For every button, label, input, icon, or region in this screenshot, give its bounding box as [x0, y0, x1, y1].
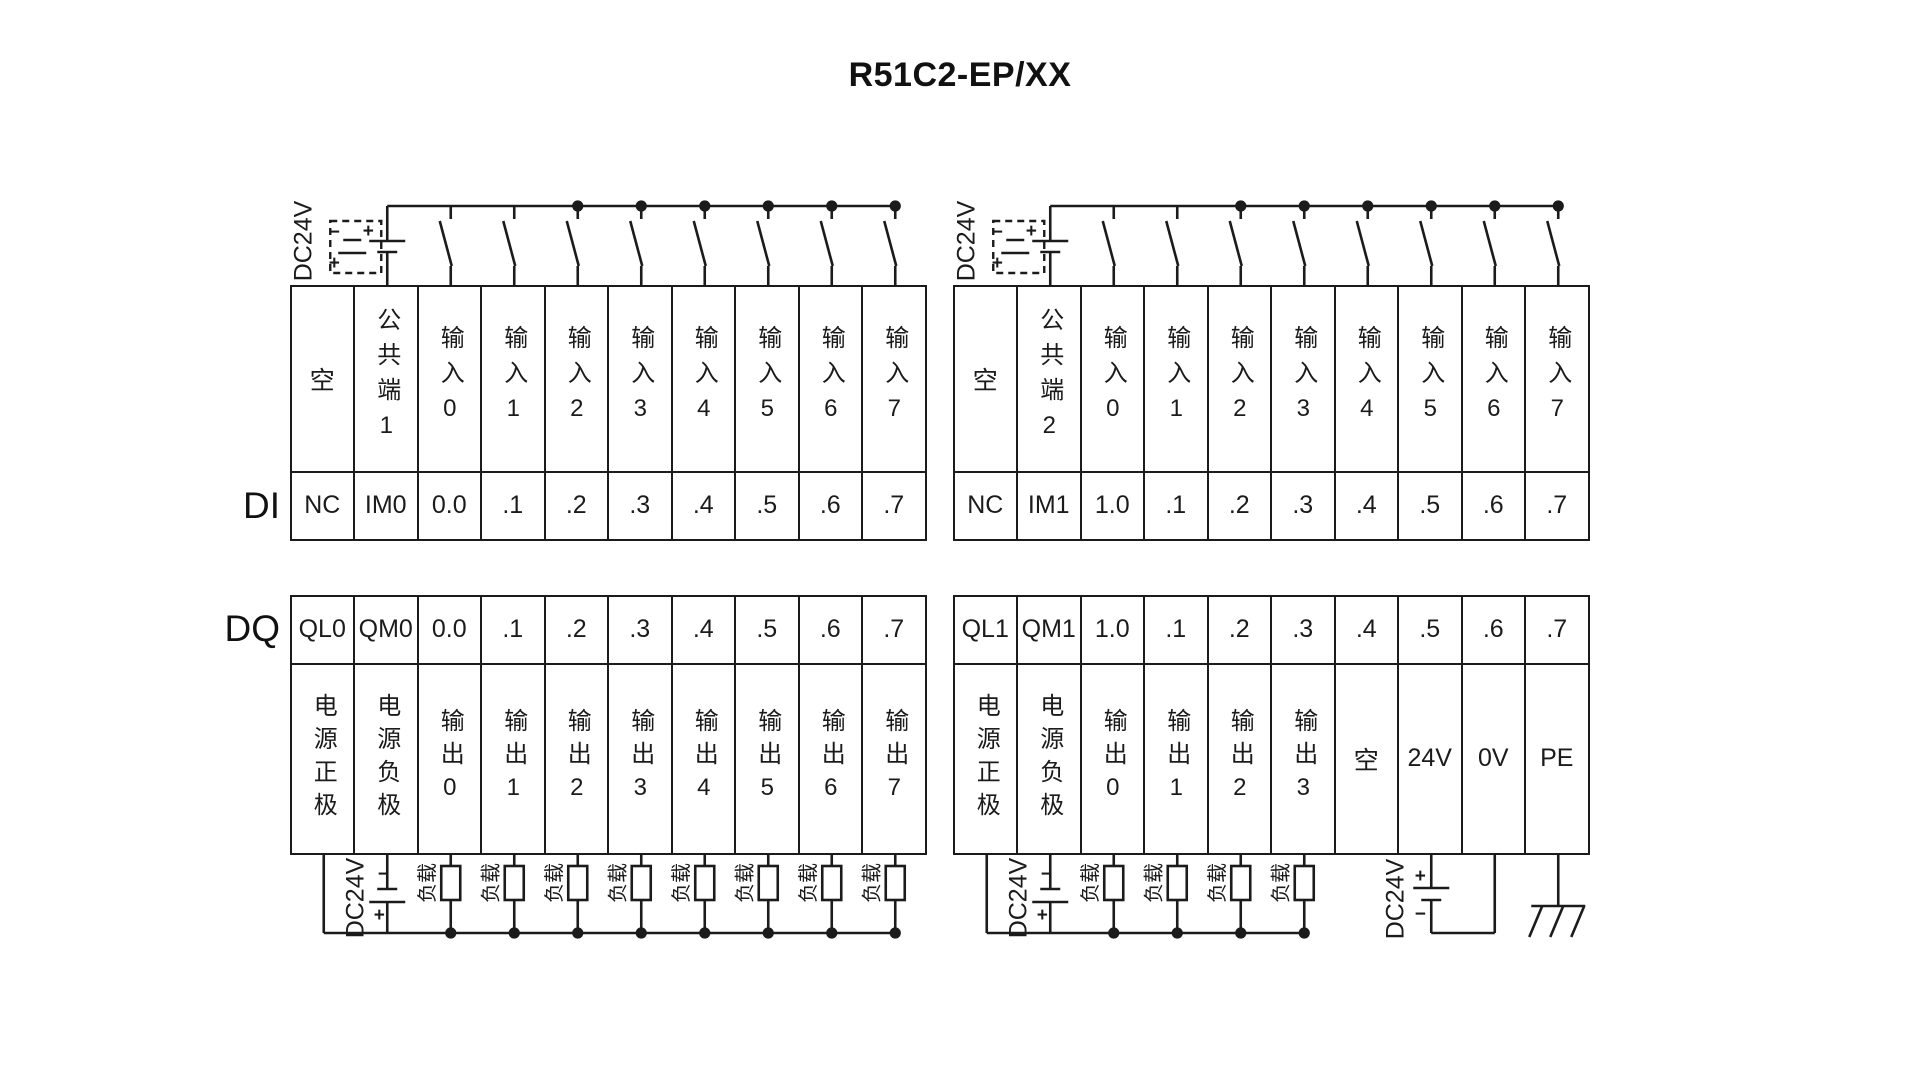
dq-header-row: 电源正极电源负极输出0输出1输出2输出3空24V0VPE: [955, 665, 1590, 855]
di-header-cell: 输入6: [800, 287, 864, 473]
di-right-table: 空公共端2输入0输入1输入2输入3输入4输入5输入6输入7NCIM11.0.1.…: [953, 285, 1590, 541]
junction-dot: [636, 927, 647, 938]
di-header-text: 输入5: [1418, 325, 1442, 433]
junction-dot: [1299, 927, 1310, 938]
load-resistor: 负载: [1206, 855, 1251, 933]
switch-blade: [884, 221, 896, 266]
dq-header-text: 输出7: [882, 708, 906, 810]
di-header-text: 输入6: [1481, 325, 1505, 433]
junction-dot: [763, 200, 774, 211]
switch-blade: [567, 221, 579, 266]
di-header-cell: 公共端2: [1018, 287, 1082, 473]
load-resistor: 负载: [479, 855, 524, 933]
load-label: 负载: [543, 863, 566, 903]
dq-terminal-cell: .1: [482, 597, 546, 665]
di-right-wiring: +−+DC24V: [952, 200, 1564, 287]
dq-terminal-text: .6: [1483, 615, 1504, 644]
switch-blade: [630, 221, 642, 266]
di-header-cell: 输入2: [546, 287, 610, 473]
switch-blade: [1420, 221, 1432, 266]
dq-header-text: 电源负极: [374, 693, 398, 825]
switch-blade: [821, 221, 833, 266]
dq-header-cell: 输出5: [736, 665, 800, 855]
dq-left-wiring: −+DC24V负载负载负载负载负载负载负载负载: [324, 855, 905, 939]
load-resistor-body: [1231, 866, 1250, 900]
dq-header-cell: 输出1: [482, 665, 546, 855]
dq-header-cell: 输出2: [546, 665, 610, 855]
plus-sign: +: [1026, 221, 1037, 242]
switch-blade: [440, 221, 452, 266]
minus-sign: −: [329, 222, 340, 243]
di-terminal-text: .3: [629, 491, 650, 520]
dq-header-text: 24V: [1408, 744, 1452, 773]
dq-header-cell: 0V: [1463, 665, 1527, 855]
di-header-text: 输入4: [691, 325, 715, 433]
switch-contact-icon: [503, 206, 515, 287]
switch-blade: [1166, 221, 1178, 266]
switch-blade: [503, 221, 515, 266]
dq-terminal-text: QL1: [962, 615, 1009, 644]
load-resistor-body: [632, 866, 651, 900]
di-header-cell: 输入4: [673, 287, 737, 473]
switch-contact-icon: [1547, 206, 1559, 287]
di-header-text: 输入4: [1354, 325, 1378, 433]
di-header-cell: 输入1: [1145, 287, 1209, 473]
dq-header-text: 输出5: [755, 708, 779, 810]
di-header-cell: 输入7: [1526, 287, 1590, 473]
dq-terminal-cell: .3: [1272, 597, 1336, 665]
di-header-text: 公共端1: [374, 307, 398, 450]
dq-right-wiring: −+DC24V负载负载负载负载+−DC24V: [987, 855, 1586, 939]
dq-header-cell: 输出2: [1209, 665, 1273, 855]
dq-terminal-cell: .1: [1145, 597, 1209, 665]
dq-terminal-cell: QL1: [955, 597, 1019, 665]
di-header-cell: 输入4: [1336, 287, 1400, 473]
switch-contact-icon: [1293, 206, 1305, 287]
load-resistor-body: [1104, 866, 1123, 900]
dq-terminal-cell: .5: [736, 597, 800, 665]
dc24v-label: DC24V: [1004, 857, 1032, 938]
di-header-text: 输入0: [437, 325, 461, 433]
di-terminal-text: .6: [820, 491, 841, 520]
di-header-cell: 输入3: [1272, 287, 1336, 473]
dq-terminal-text: .1: [502, 615, 523, 644]
dq-terminal-cell: QM1: [1018, 597, 1082, 665]
di-header-text: 输入5: [755, 325, 779, 433]
di-terminal-cell: .3: [609, 473, 673, 541]
plus-sign: +: [992, 253, 1003, 274]
switch-contact-icon: [1166, 206, 1178, 287]
dq-terminal-cell: .7: [863, 597, 927, 665]
dq-terminal-text: .1: [1165, 615, 1186, 644]
di-header-text: 输入7: [1545, 325, 1569, 433]
dq-header-text: 电源负极: [1037, 693, 1061, 825]
dq-terminal-text: .3: [629, 615, 650, 644]
plus-sign: +: [1037, 905, 1048, 926]
di-terminal-text: 1.0: [1095, 491, 1130, 520]
dq-terminal-text: .6: [820, 615, 841, 644]
ground-hatch: [1571, 906, 1584, 937]
dq-terminal-cell: .4: [1336, 597, 1400, 665]
load-resistor: 负载: [416, 855, 461, 933]
dq-terminal-cell: 0.0: [419, 597, 483, 665]
switch-blade: [1484, 221, 1496, 266]
plus-sign: +: [329, 253, 340, 274]
junction-dot: [699, 927, 710, 938]
di-terminal-cell: .4: [673, 473, 737, 541]
dq-header-cell: 输出6: [800, 665, 864, 855]
di-terminal-cell: 0.0: [419, 473, 483, 541]
di-header-text: 空: [310, 361, 335, 397]
load-resistor: 负载: [670, 855, 715, 933]
dq-terminal-text: .5: [1419, 615, 1440, 644]
junction-dot: [763, 927, 774, 938]
dq-header-cell: 输出3: [1272, 665, 1336, 855]
di-terminal-cell: .7: [1526, 473, 1590, 541]
junction-dot: [1362, 200, 1373, 211]
junction-dot: [1553, 200, 1564, 211]
dq-terminal-cell: .2: [1209, 597, 1273, 665]
load-resistor: 负载: [1142, 855, 1187, 933]
di-header-text: 输入3: [628, 325, 652, 433]
di-terminal-text: .4: [1356, 491, 1377, 520]
load-label: 负载: [416, 863, 439, 903]
ground-hatch: [1550, 906, 1563, 937]
load-resistor-body: [1295, 866, 1314, 900]
di-terminal-text: IM0: [365, 491, 407, 520]
junction-dot: [509, 927, 520, 938]
switch-contact-icon: [884, 206, 896, 287]
dq-right-table: QL1QM11.0.1.2.3.4.5.6.7电源正极电源负极输出0输出1输出2…: [953, 595, 1590, 855]
di-terminal-text: .3: [1292, 491, 1313, 520]
load-label: 负载: [670, 863, 693, 903]
dq-header-text: 输出6: [818, 708, 842, 810]
switch-blade: [694, 221, 706, 266]
di-header-text: 输入2: [564, 325, 588, 433]
di-header-cell: 输入2: [1209, 287, 1273, 473]
junction-dot: [890, 927, 901, 938]
di-left-wiring: +−+DC24V: [289, 200, 901, 287]
dc24v-label: DC24V: [1381, 858, 1409, 939]
dq-header-cell: 电源负极: [1018, 665, 1082, 855]
minus-sign: −: [1415, 904, 1426, 925]
junction-dot: [445, 927, 456, 938]
load-resistor: 负载: [860, 855, 905, 933]
load-label: 负载: [1142, 863, 1165, 903]
wiring-diagram-page: R51C2-EP/XX DI DQ +−+DC24V+−+DC24V−+DC24…: [0, 0, 1920, 1080]
junction-dot: [1108, 927, 1119, 938]
di-terminal-cell: NC: [955, 473, 1019, 541]
dq-terminal-cell: .3: [609, 597, 673, 665]
di-terminal-text: .5: [756, 491, 777, 520]
switch-blade: [1230, 221, 1242, 266]
dc24v-label: DC24V: [289, 200, 317, 281]
load-label: 负载: [733, 863, 756, 903]
dq-header-cell: 空: [1336, 665, 1400, 855]
dq-left-table: QL0QM00.0.1.2.3.4.5.6.7电源正极电源负极输出0输出1输出2…: [290, 595, 927, 855]
junction-dot: [890, 200, 901, 211]
switch-contact-icon: [757, 206, 769, 287]
junction-dot: [1235, 200, 1246, 211]
dq-terminal-text: .7: [1546, 615, 1567, 644]
di-header-text: 输入3: [1291, 325, 1315, 433]
dq-header-text: PE: [1540, 744, 1573, 773]
di-terminal-cell: .4: [1336, 473, 1400, 541]
load-resistor: 负载: [797, 855, 842, 933]
di-terminal-text: IM1: [1028, 491, 1070, 520]
di-terminal-text: .5: [1419, 491, 1440, 520]
di-terminal-cell: IM1: [1018, 473, 1082, 541]
dq-header-text: 输出1: [501, 708, 525, 810]
switch-blade: [1547, 221, 1559, 266]
dq-header-text: 输出0: [437, 708, 461, 810]
switch-contact-icon: [1230, 206, 1242, 287]
junction-dot: [1235, 927, 1246, 938]
dq-header-cell: 输出0: [419, 665, 483, 855]
di-terminal-cell: .2: [546, 473, 610, 541]
junction-dot: [826, 927, 837, 938]
di-header-cell: 空: [955, 287, 1019, 473]
dq-header-cell: 输出0: [1082, 665, 1146, 855]
dq-terminal-text: QL0: [299, 615, 346, 644]
di-header-row: 空公共端1输入0输入1输入2输入3输入4输入5输入6输入7: [292, 287, 927, 473]
load-resistor-body: [695, 866, 714, 900]
load-label: 负载: [797, 863, 820, 903]
di-terminal-text: 0.0: [432, 491, 467, 520]
di-terminal-cell: .1: [1145, 473, 1209, 541]
dq-terminal-text: .5: [756, 615, 777, 644]
dq-header-text: 0V: [1478, 744, 1509, 773]
dq-terminal-cell: .4: [673, 597, 737, 665]
load-label: 负载: [860, 863, 883, 903]
load-label: 负载: [1206, 863, 1229, 903]
dq-terminal-text: .4: [1356, 615, 1377, 644]
di-terminal-row: NCIM11.0.1.2.3.4.5.6.7: [955, 473, 1590, 541]
di-terminal-cell: .2: [1209, 473, 1273, 541]
dq-header-text: 输出3: [628, 708, 652, 810]
di-left-table: 空公共端1输入0输入1输入2输入3输入4输入5输入6输入7NCIM00.0.1.…: [290, 285, 927, 541]
dq-header-text: 空: [1354, 741, 1379, 777]
dq-header-cell: 输出7: [863, 665, 927, 855]
di-header-cell: 输入0: [419, 287, 483, 473]
di-terminal-cell: .5: [736, 473, 800, 541]
switch-contact-icon: [567, 206, 579, 287]
di-header-row: 空公共端2输入0输入1输入2输入3输入4输入5输入6输入7: [955, 287, 1590, 473]
plus-sign: +: [1415, 866, 1426, 887]
load-resistor-body: [822, 866, 841, 900]
dq-terminal-text: QM1: [1022, 615, 1076, 644]
di-terminal-text: .2: [1229, 491, 1250, 520]
dq-terminal-text: .2: [1229, 615, 1250, 644]
di-terminal-cell: .1: [482, 473, 546, 541]
junction-dot: [826, 200, 837, 211]
di-header-cell: 输入0: [1082, 287, 1146, 473]
dq-header-text: 输出1: [1164, 708, 1188, 810]
switch-contact-icon: [694, 206, 706, 287]
junction-dot: [699, 200, 710, 211]
dq-header-text: 输出2: [564, 708, 588, 810]
switch-blade: [757, 221, 769, 266]
junction-dot: [636, 200, 647, 211]
switch-blade: [1357, 221, 1369, 266]
dq-terminal-cell: .5: [1399, 597, 1463, 665]
ground-hatch: [1529, 906, 1542, 937]
di-header-cell: 输入7: [863, 287, 927, 473]
di-terminal-text: .2: [566, 491, 587, 520]
di-terminal-cell: .3: [1272, 473, 1336, 541]
plus-sign: +: [363, 221, 374, 242]
dq-header-cell: 输出4: [673, 665, 737, 855]
dq-terminal-cell: .7: [1526, 597, 1590, 665]
load-resistor-body: [759, 866, 778, 900]
minus-sign: −: [992, 222, 1003, 243]
dq-header-cell: 电源正极: [292, 665, 356, 855]
di-header-cell: 公共端1: [355, 287, 419, 473]
load-resistor: 负载: [543, 855, 588, 933]
switch-blade: [1103, 221, 1115, 266]
di-terminal-text: .4: [693, 491, 714, 520]
junction-dot: [1426, 200, 1437, 211]
dq-header-row: 电源正极电源负极输出0输出1输出2输出3输出4输出5输出6输出7: [292, 665, 927, 855]
di-terminal-text: .1: [502, 491, 523, 520]
load-resistor: 负载: [733, 855, 778, 933]
dq-header-text: 电源正极: [310, 693, 334, 825]
dq-header-cell: PE: [1526, 665, 1590, 855]
di-terminal-cell: 1.0: [1082, 473, 1146, 541]
dq-terminal-cell: 1.0: [1082, 597, 1146, 665]
dq-header-text: 输出0: [1100, 708, 1124, 810]
dq-terminal-text: .2: [566, 615, 587, 644]
di-header-text: 输入2: [1227, 325, 1251, 433]
di-terminal-cell: .6: [1463, 473, 1527, 541]
load-resistor-body: [441, 866, 460, 900]
di-header-text: 输入1: [1164, 325, 1188, 433]
load-resistor-body: [568, 866, 587, 900]
di-header-cell: 输入3: [609, 287, 673, 473]
switch-contact-icon: [1103, 206, 1115, 287]
load-label: 负载: [1269, 863, 1292, 903]
load-label: 负载: [1079, 863, 1102, 903]
di-header-text: 输入7: [882, 325, 906, 433]
dq-header-cell: 输出3: [609, 665, 673, 855]
di-terminal-cell: .5: [1399, 473, 1463, 541]
dq-terminal-cell: .6: [1463, 597, 1527, 665]
load-resistor-body: [886, 866, 905, 900]
load-resistor: 负载: [1079, 855, 1124, 933]
di-header-text: 输入6: [818, 325, 842, 433]
di-header-text: 输入1: [501, 325, 525, 433]
junction-dot: [1172, 927, 1183, 938]
dq-terminal-cell: QL0: [292, 597, 356, 665]
dq-terminal-text: 1.0: [1095, 615, 1130, 644]
junction-dot: [572, 200, 583, 211]
dq-header-text: 电源正极: [973, 693, 997, 825]
di-header-cell: 输入5: [1399, 287, 1463, 473]
load-resistor-body: [505, 866, 524, 900]
di-terminal-text: NC: [304, 491, 340, 520]
dq-header-cell: 24V: [1399, 665, 1463, 855]
di-terminal-text: .7: [883, 491, 904, 520]
switch-contact-icon: [821, 206, 833, 287]
dq-terminal-row: QL1QM11.0.1.2.3.4.5.6.7: [955, 597, 1590, 665]
di-terminal-text: .7: [1546, 491, 1567, 520]
di-header-text: 公共端2: [1037, 307, 1061, 450]
di-header-text: 输入0: [1100, 325, 1124, 433]
switch-contact-icon: [630, 206, 642, 287]
di-header-cell: 输入5: [736, 287, 800, 473]
load-resistor-body: [1168, 866, 1187, 900]
di-terminal-text: .6: [1483, 491, 1504, 520]
dq-header-text: 输出3: [1291, 708, 1315, 810]
load-resistor: 负载: [1269, 855, 1314, 933]
junction-dot: [1489, 200, 1500, 211]
switch-contact-icon: [1484, 206, 1496, 287]
dq-terminal-text: 0.0: [432, 615, 467, 644]
dq-terminal-cell: .2: [546, 597, 610, 665]
dq-header-cell: 电源负极: [355, 665, 419, 855]
switch-contact-icon: [1420, 206, 1432, 287]
dq-terminal-cell: .6: [800, 597, 864, 665]
dq-header-text: 输出4: [691, 708, 715, 810]
dq-header-cell: 电源正极: [955, 665, 1019, 855]
dq-terminal-text: QM0: [359, 615, 413, 644]
di-terminal-row: NCIM00.0.1.2.3.4.5.6.7: [292, 473, 927, 541]
junction-dot: [572, 927, 583, 938]
dq-terminal-row: QL0QM00.0.1.2.3.4.5.6.7: [292, 597, 927, 665]
junction-dot: [1299, 200, 1310, 211]
load-resistor: 负载: [606, 855, 651, 933]
load-label: 负载: [479, 863, 502, 903]
di-terminal-text: NC: [967, 491, 1003, 520]
switch-contact-icon: [440, 206, 452, 287]
di-header-cell: 空: [292, 287, 356, 473]
dq-terminal-cell: QM0: [355, 597, 419, 665]
dc24v-label: DC24V: [341, 857, 369, 938]
plus-sign: +: [374, 905, 385, 926]
di-header-cell: 输入6: [1463, 287, 1527, 473]
dq-terminal-text: .4: [693, 615, 714, 644]
switch-contact-icon: [1357, 206, 1369, 287]
di-header-cell: 输入1: [482, 287, 546, 473]
di-terminal-cell: IM0: [355, 473, 419, 541]
dq-terminal-text: .7: [883, 615, 904, 644]
di-terminal-cell: .6: [800, 473, 864, 541]
dq-header-cell: 输出1: [1145, 665, 1209, 855]
dq-header-text: 输出2: [1227, 708, 1251, 810]
switch-blade: [1293, 221, 1305, 266]
minus-sign: −: [1041, 864, 1052, 885]
minus-sign: −: [378, 864, 389, 885]
di-header-text: 空: [973, 361, 998, 397]
dq-terminal-text: .3: [1292, 615, 1313, 644]
di-terminal-cell: NC: [292, 473, 356, 541]
earth-ground-symbol: [1529, 855, 1585, 937]
load-label: 负载: [606, 863, 629, 903]
di-terminal-text: .1: [1165, 491, 1186, 520]
di-terminal-cell: .7: [863, 473, 927, 541]
dc24v-label: DC24V: [952, 200, 980, 281]
